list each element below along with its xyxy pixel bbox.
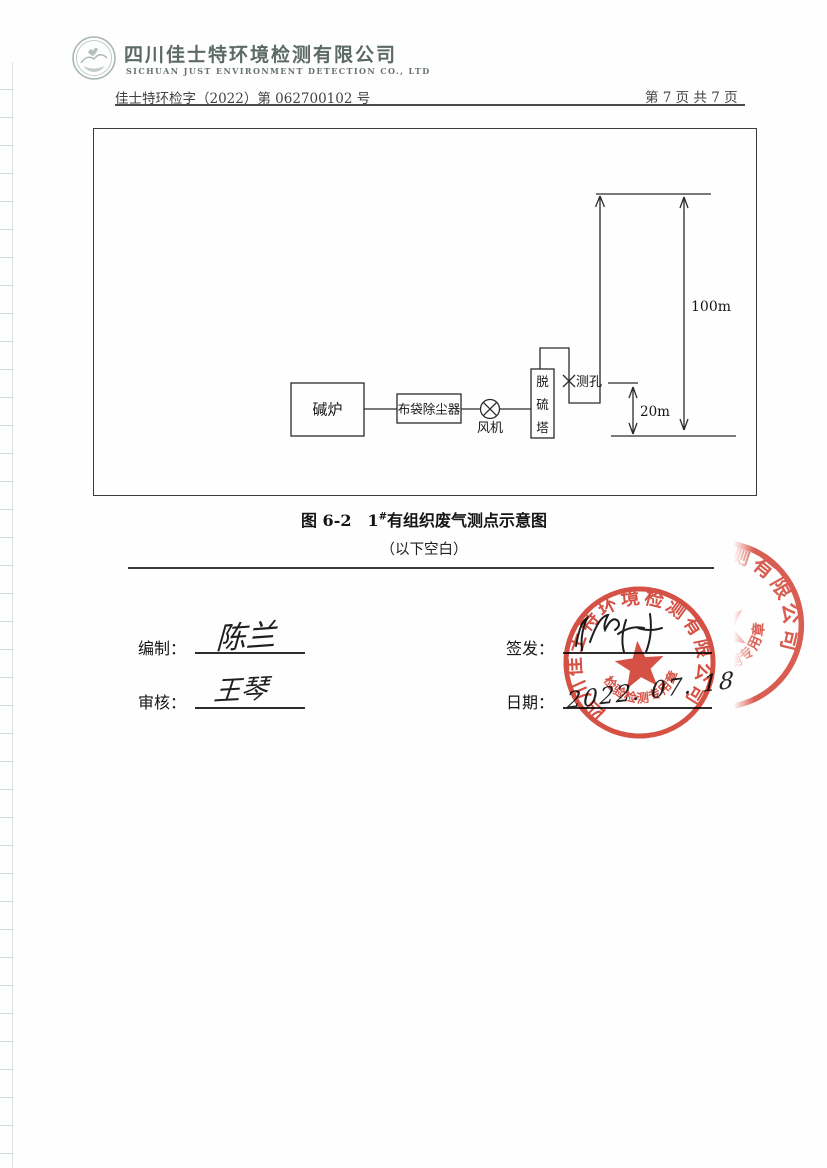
prepared-by-label: 编制：: [138, 635, 186, 659]
furnace-label: 碱炉: [312, 401, 342, 419]
waste-gas-diagram: 碱炉 布袋除尘器 风机 脱 硫 塔 测孔 100m 20m: [94, 129, 756, 495]
sample-port-label: 测孔: [576, 375, 602, 390]
port-height-label: 20m: [640, 404, 670, 420]
scan-edge-vertical-line: [12, 62, 13, 1168]
prepared-by-signature: 陈兰: [215, 610, 276, 658]
figure-caption-sup: #: [379, 512, 387, 523]
company-name-cn: 四川佳士特环境检测有限公司: [124, 40, 397, 67]
figure-caption: 图 6-2 1#有组织废气测点示意图: [93, 507, 755, 531]
page-number: 第 7 页 共 7 页: [645, 86, 738, 106]
partial-seal-stamp: 四川佳士特环境检测有限公司 检验检测专用章: [630, 536, 808, 714]
dust-collector-label: 布袋除尘器: [398, 402, 461, 417]
diagram-frame: 碱炉 布袋除尘器 风机 脱 硫 塔 测孔 100m 20m: [93, 128, 757, 496]
fan-label: 风机: [477, 421, 503, 436]
reviewed-by-label: 审核：: [138, 689, 186, 713]
tower-label-char: 硫: [536, 397, 549, 412]
issued-by-label: 签发：: [506, 635, 554, 659]
header-rule: [115, 104, 745, 106]
signoff-separator-rule: [128, 567, 714, 569]
stack-arrowhead: [596, 196, 601, 207]
tower-label-char: 塔: [536, 420, 549, 435]
reviewed-by-signature: 王琴: [212, 666, 269, 708]
date-label: 日期：: [506, 689, 554, 713]
scanned-report-page: 四川佳士特环境检测有限公司 SICHUAN JUST ENVIRONMENT D…: [0, 0, 827, 1168]
company-logo-icon: [71, 35, 117, 81]
figure-caption-title: 有组织废气测点示意图: [387, 511, 547, 530]
stack-duct-line: [540, 197, 600, 403]
figure-caption-prefix: 图 6-2 1: [301, 511, 379, 530]
company-name-en: SICHUAN JUST ENVIRONMENT DETECTION CO., …: [126, 66, 431, 76]
stack-arrowhead: [600, 196, 605, 207]
tower-label-char: 脱: [536, 374, 549, 389]
stack-height-label: 100m: [691, 299, 731, 315]
